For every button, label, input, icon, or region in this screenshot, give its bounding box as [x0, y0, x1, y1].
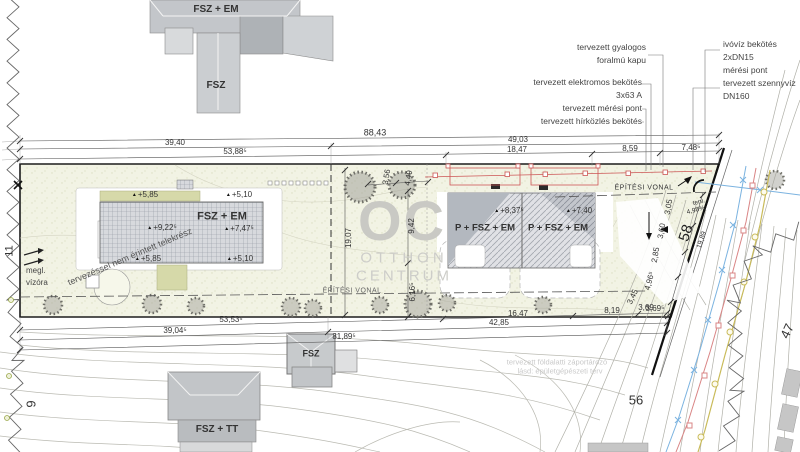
dim-label: 39,04⁵ — [163, 327, 186, 335]
note-storm-2: lásd: épületgépészeti terv — [517, 367, 602, 375]
elevation-label: ▲+7,40 — [566, 207, 592, 215]
building-label-right-a: P + FSZ + EM — [455, 223, 515, 233]
building-label-top-wing: FSZ — [207, 81, 226, 91]
tree — [188, 298, 204, 314]
note-building-line-south: ÉPÍTÉSI VONAL — [322, 288, 381, 295]
stair-blocks — [588, 369, 800, 452]
tree — [44, 296, 62, 314]
tree — [305, 300, 321, 316]
watermark-name1: OTTHON — [360, 251, 447, 266]
callout-electric-1: tervezett elektromos bekötés — [533, 78, 642, 87]
note-building-line-north: ÉPÍTÉSI VONAL — [614, 185, 673, 192]
building-label-south-small: FSZ — [303, 350, 320, 359]
callout-gate-2: foralmú kapu — [597, 56, 646, 65]
dim-label: 8,19 — [604, 307, 620, 315]
dim-label: 3,69 — [638, 304, 654, 312]
tree — [535, 297, 551, 313]
tree — [439, 295, 455, 311]
building-label-left: FSZ + EM — [197, 212, 247, 223]
elevation-label: ▲+5,85 — [132, 191, 158, 199]
site-plan-page: OC OTTHON CENTRUM FSZ + EM FSZ FSZ + EM … — [0, 0, 800, 452]
note-storm-1: tervezett földalatti záportározó — [507, 358, 607, 366]
watermark-name2: CENTRUM — [356, 269, 452, 284]
tree — [372, 297, 388, 313]
dim-label: 88,43 — [364, 129, 387, 138]
watermark-logo: OC — [358, 193, 446, 249]
callout-gate-1: tervezett gyalogos — [577, 43, 646, 52]
leader-lines — [642, 50, 720, 172]
building-label-south-large: FSZ + TT — [196, 425, 239, 435]
elevation-label: ▲+7,47⁵ — [224, 225, 254, 233]
parcel-number-11: 11 — [5, 245, 16, 256]
building-label-right-b: P + FSZ + EM — [528, 223, 588, 233]
dim-label: 39,40 — [165, 139, 185, 147]
dim-label: 53,88⁵ — [223, 148, 246, 156]
level-marker-icon: ▲ — [226, 192, 231, 198]
tree — [282, 298, 300, 316]
callout-water-3: mérési pont — [723, 66, 767, 75]
dim-label: 42,85 — [489, 319, 509, 327]
dim-label: 9,42 — [408, 218, 416, 234]
elevation-label: ▲+5,10 — [226, 191, 252, 199]
callout-electric-2: 3x63 A — [616, 91, 642, 100]
dim-label: 16,47 — [508, 310, 528, 318]
dim-label: 53,53⁵ — [219, 316, 242, 324]
level-marker-icon: ▲ — [227, 256, 232, 262]
elevation-label: ▲+9,22⁵ — [147, 224, 177, 232]
chimney-icon — [539, 185, 548, 190]
parcel-number-56: 56 — [629, 394, 643, 407]
callout-water-1: ivóvíz bekötés — [723, 40, 777, 49]
callout-telecom: tervezett hírközlés bekötés — [541, 117, 642, 126]
level-marker-icon: ▲ — [224, 226, 229, 232]
callout-water-2: 2xDN15 — [723, 53, 754, 62]
building-label-top-main: FSZ + EM — [193, 5, 238, 15]
level-marker-icon: ▲ — [132, 192, 137, 198]
dim-label: 49,03 — [508, 136, 528, 144]
level-marker-icon: ▲ — [494, 208, 499, 214]
level-marker-icon: ▲ — [147, 225, 152, 231]
neighbor-building-north — [150, 0, 333, 113]
elevation-label: ▲+5,10 — [227, 255, 253, 263]
note-water-meter-2: vízóra — [26, 279, 48, 287]
note-water-meter-1: megl. — [26, 267, 46, 275]
callout-sewer-1: tervezett szennyvíz — [723, 79, 796, 88]
dim-label: 8,59 — [622, 145, 638, 153]
dim-label: 6,16⁵ — [409, 283, 417, 302]
dim-label: 19,07 — [345, 228, 353, 248]
level-marker-icon: ▲ — [566, 208, 571, 214]
neighbor-building-south-large — [168, 367, 332, 452]
dim-label: 7,48⁵ — [682, 144, 701, 152]
elevation-label: ▲+8,37⁵ — [494, 207, 524, 215]
dim-label: 18,47 — [507, 146, 527, 154]
dim-label: 81,89⁵ — [332, 333, 355, 341]
callout-meter: tervezett mérési pont — [563, 104, 642, 113]
parcel-number-9: 9 — [25, 400, 38, 407]
callout-sewer-2: DN160 — [723, 92, 749, 101]
tree — [143, 295, 161, 313]
